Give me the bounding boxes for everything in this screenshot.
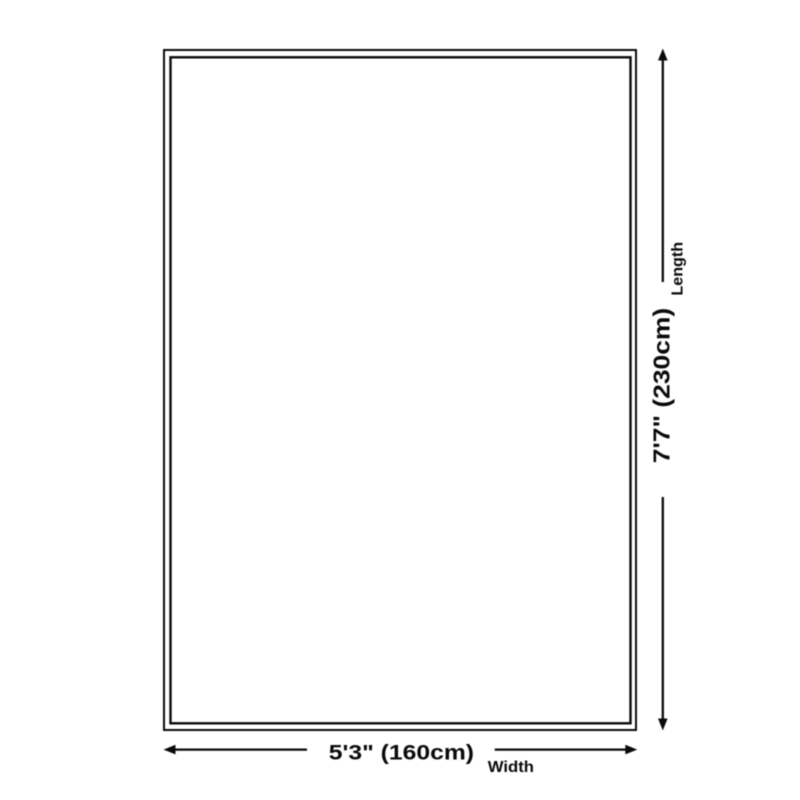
svg-text:Length: Length [669,242,686,296]
svg-text:Width: Width [488,759,534,776]
svg-text:5'3" (160cm): 5'3" (160cm) [329,741,474,764]
svg-text:7'7" (230cm): 7'7" (230cm) [648,308,674,463]
